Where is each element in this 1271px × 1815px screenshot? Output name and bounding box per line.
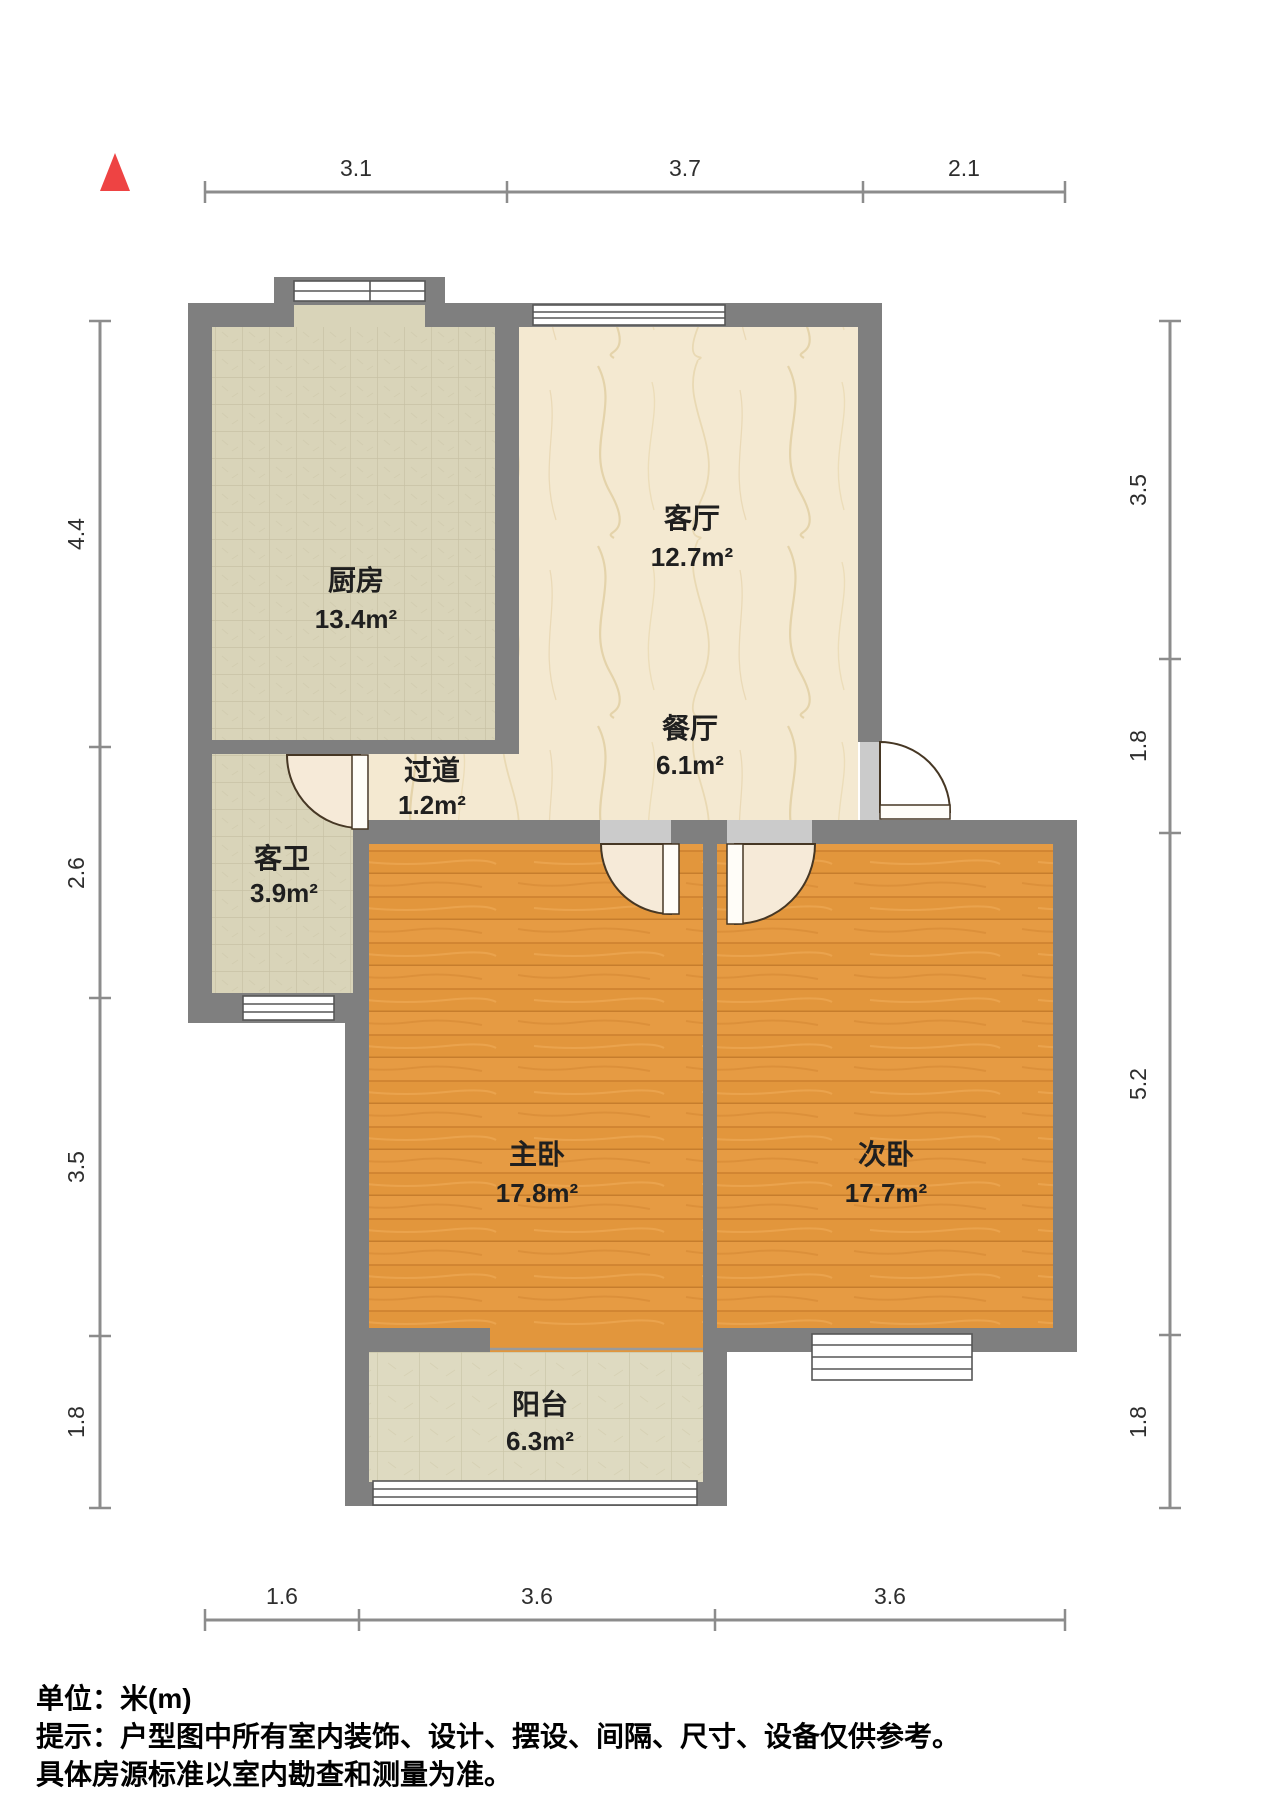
bathroom-window xyxy=(243,996,334,1020)
dim-label-right-3: 1.8 xyxy=(1125,1406,1151,1438)
room-area-living: 12.7m² xyxy=(651,542,734,572)
entry-door-jamb xyxy=(860,742,882,820)
room-area-master-bedroom: 17.8m² xyxy=(496,1178,579,1208)
room-area-dining: 6.1m² xyxy=(656,750,724,780)
wall-kitchen-bottom xyxy=(188,740,519,754)
dim-label-left-2: 3.5 xyxy=(63,1151,89,1183)
dim-label-right-0: 3.5 xyxy=(1125,474,1151,506)
dim-label-left-1: 2.6 xyxy=(63,857,89,889)
wall-living-right xyxy=(858,303,882,742)
room-area-hallway: 1.2m² xyxy=(398,790,466,820)
master-door-jamb xyxy=(600,820,671,844)
room-label-bathroom: 客卫 xyxy=(254,842,310,874)
room-area-bathroom: 3.9m² xyxy=(250,878,318,908)
room-label-dining: 餐厅 xyxy=(662,713,718,744)
room-label-second-bedroom: 次卧 xyxy=(858,1139,914,1170)
wall-left xyxy=(188,303,212,1023)
floors xyxy=(212,327,1053,1482)
dim-label-right-2: 5.2 xyxy=(1125,1068,1151,1100)
dim-label-bottom-0: 1.6 xyxy=(266,1583,298,1609)
room-label-master-bedroom: 主卧 xyxy=(509,1139,565,1170)
room-area-balcony: 6.3m² xyxy=(506,1426,574,1456)
wall-kitchen-living-divider xyxy=(495,303,519,754)
dim-label-bottom-2: 3.6 xyxy=(874,1583,906,1609)
room-label-hallway: 过道 xyxy=(404,754,460,786)
dim-label-top-1: 3.7 xyxy=(669,155,701,181)
wall-left-lower xyxy=(345,993,369,1506)
floorplan-svg: 3.1 3.7 2.1 4.4 2.6 3.5 1.8 3.5 1.8 5.2 … xyxy=(0,0,1271,1815)
room-label-balcony: 阳台 xyxy=(512,1388,568,1420)
room-area-kitchen: 13.4m² xyxy=(315,604,398,634)
kitchen-floor xyxy=(212,327,495,740)
master-bedroom-floor xyxy=(369,844,703,1328)
dim-label-right-1: 1.8 xyxy=(1125,730,1151,762)
footer-unit-line: 单位：米(m) xyxy=(36,1680,192,1718)
dim-label-left-0: 4.4 xyxy=(63,518,89,550)
wall-second-bedroom-right xyxy=(1053,844,1077,1352)
room-label-kitchen: 厨房 xyxy=(328,564,384,596)
second-door-jamb xyxy=(727,820,812,844)
wall-bedrooms-top xyxy=(353,820,1077,844)
room-area-second-bedroom: 17.7m² xyxy=(845,1178,928,1208)
left-dimension-line xyxy=(89,321,111,1508)
footer-note-line1: 提示：户型图中所有室内装饰、设计、摆设、间隔、尺寸、设备仅供参考。 xyxy=(36,1718,960,1756)
wall-bathroom-right xyxy=(353,829,369,993)
dim-label-bottom-1: 3.6 xyxy=(521,1583,553,1609)
balcony-window xyxy=(373,1481,697,1505)
entry-door xyxy=(880,742,950,819)
room-label-living: 客厅 xyxy=(664,502,720,534)
top-dimension-line xyxy=(205,181,1065,203)
dim-label-left-3: 1.8 xyxy=(63,1406,89,1438)
dim-label-top-2: 2.1 xyxy=(948,155,980,181)
footer-note-line2: 具体房源标准以室内勘查和测量为准。 xyxy=(36,1756,512,1794)
north-indicator-icon xyxy=(100,153,130,191)
bottom-dimension-line xyxy=(205,1609,1065,1631)
right-dimension-line xyxy=(1159,321,1181,1508)
wall-bedroom-divider xyxy=(703,844,717,1328)
second-bedroom-window xyxy=(812,1334,972,1380)
floorplan-page: 3.1 3.7 2.1 4.4 2.6 3.5 1.8 3.5 1.8 5.2 … xyxy=(0,0,1271,1815)
living-window xyxy=(533,305,725,325)
dim-label-top-0: 3.1 xyxy=(340,155,372,181)
